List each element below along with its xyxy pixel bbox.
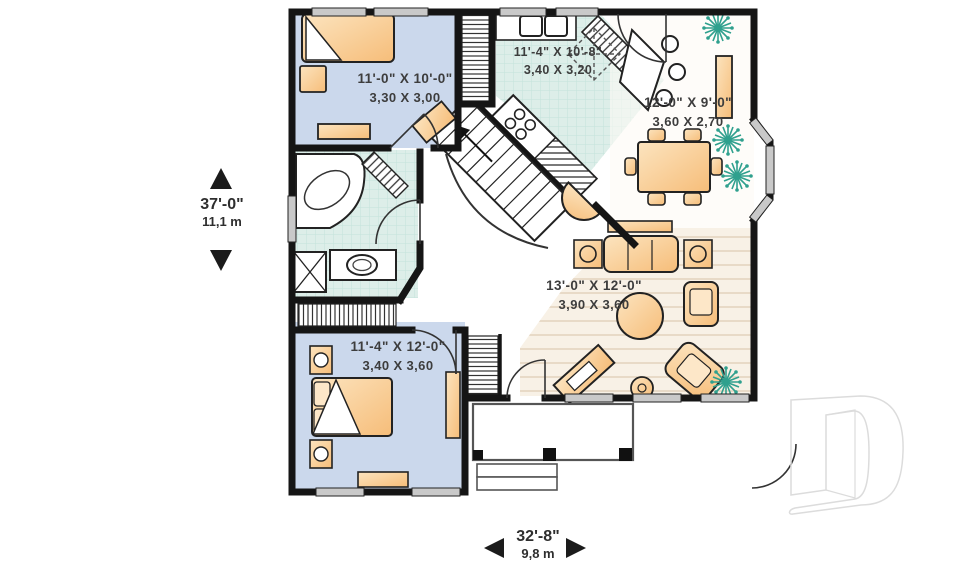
room-size-metric: 3,60 X 2,70: [618, 113, 758, 131]
plant-icon: [702, 12, 734, 44]
floor-plan-page: 11'-0" X 10'-0" 3,30 X 3,00 11'-4" X 10'…: [0, 0, 960, 569]
vanity-sink: [347, 255, 377, 275]
overall-depth-label: 37'-0" 11,1 m: [182, 196, 262, 229]
foyer-closet: [468, 336, 498, 394]
room-label-dining: 12'-0" X 9'-0" 3,60 X 2,70: [618, 94, 758, 131]
room-size-metric: 3,40 X 3,60: [328, 357, 468, 375]
dimension-arrow-right-icon: [566, 538, 586, 558]
room-label-bedroom-top: 11'-0" X 10'-0" 3,30 X 3,00: [320, 70, 490, 107]
end-table-lamp: [684, 240, 712, 268]
overall-depth-metric: 11,1 m: [182, 214, 262, 229]
room-size-imperial: 11'-4" X 10'-8": [492, 44, 624, 62]
dresser-tall: [446, 372, 460, 438]
end-table-lamp: [574, 240, 602, 268]
room-size-metric: 3,40 X 3,20: [492, 62, 624, 80]
overall-depth-imperial: 37'-0": [182, 196, 262, 214]
room-size-imperial: 11'-0" X 10'-0": [320, 70, 490, 89]
bay-window: [766, 146, 774, 194]
nightstand: [310, 440, 332, 468]
room-size-metric: 3,30 X 3,00: [320, 89, 490, 107]
dresser: [358, 472, 408, 487]
dresser: [318, 124, 370, 139]
bedroom-closet: [298, 304, 396, 326]
sink-left: [520, 16, 542, 36]
plant-icon: [710, 366, 742, 398]
shower-stall: [294, 252, 326, 292]
armchair: [684, 282, 718, 326]
brand-watermark-d-icon: [789, 396, 903, 514]
room-label-living: 13'-0" X 12'-0" 3,90 X 3,60: [520, 277, 668, 314]
room-size-imperial: 13'-0" X 12'-0": [520, 277, 668, 296]
porch: [473, 404, 633, 490]
room-label-kitchen: 11'-4" X 10'-8" 3,40 X 3,20: [492, 44, 624, 79]
dimension-arrow-up-icon: [210, 168, 232, 189]
sofa: [604, 236, 678, 272]
porch-step: [477, 464, 557, 477]
plant-icon: [721, 160, 753, 192]
sink-right: [545, 16, 567, 36]
room-size-imperial: 11'-4" X 12'-0": [328, 338, 468, 357]
room-label-bedroom-bottom: 11'-4" X 12'-0" 3,40 X 3,60: [328, 338, 468, 375]
porch-step: [477, 477, 557, 490]
room-size-metric: 3,90 X 3,60: [520, 296, 668, 314]
dimension-arrow-down-icon: [210, 250, 232, 271]
room-size-imperial: 12'-0" X 9'-0": [618, 94, 758, 113]
dining-table: [638, 142, 710, 192]
